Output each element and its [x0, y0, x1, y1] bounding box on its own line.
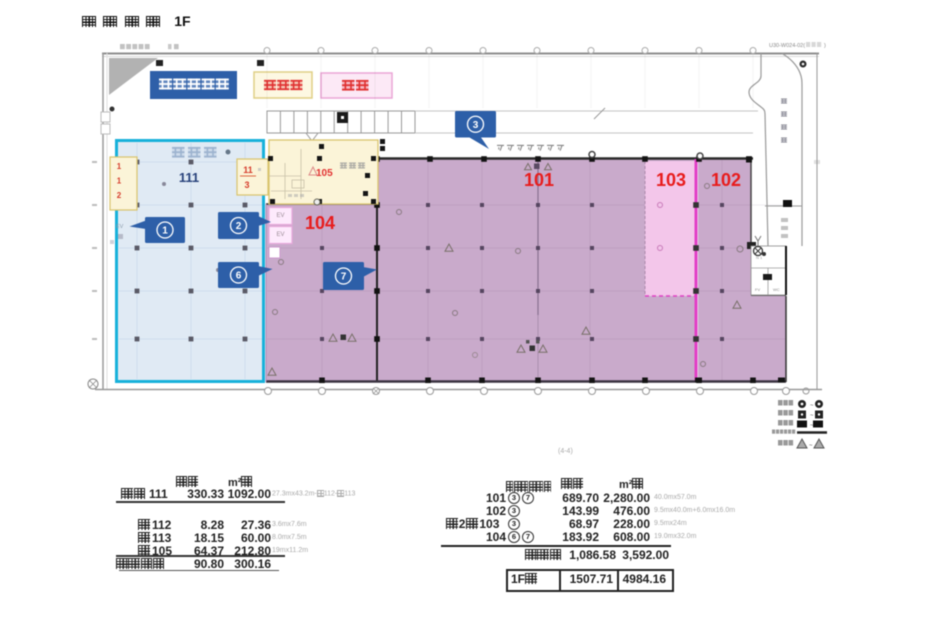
- svg-text:~: ~: [810, 403, 814, 409]
- svg-text:3: 3: [244, 180, 249, 190]
- svg-text:103: 103: [656, 170, 686, 190]
- svg-text:~: ~: [809, 443, 813, 449]
- svg-text:1: 1: [162, 226, 168, 237]
- svg-text:1: 1: [117, 177, 122, 186]
- svg-text:104: 104: [305, 213, 335, 233]
- svg-text:2: 2: [117, 191, 122, 200]
- svg-text:7: 7: [341, 272, 347, 283]
- svg-text:6: 6: [236, 271, 242, 282]
- svg-text:EV: EV: [276, 213, 284, 219]
- svg-text:102: 102: [711, 170, 741, 190]
- svg-text:WC: WC: [773, 287, 780, 292]
- svg-text:11: 11: [243, 165, 253, 175]
- svg-text:EV: EV: [116, 224, 124, 230]
- svg-text:3: 3: [473, 120, 479, 131]
- svg-text:105: 105: [316, 168, 333, 179]
- svg-text:111: 111: [179, 170, 199, 185]
- svg-text:FV: FV: [755, 287, 760, 292]
- svg-text:): ): [824, 43, 826, 49]
- svg-text:101: 101: [524, 170, 554, 190]
- svg-text:~: ~: [810, 413, 814, 419]
- svg-text:2: 2: [236, 221, 242, 232]
- svg-text:EV: EV: [276, 232, 284, 238]
- svg-text:U30-W024-02(: U30-W024-02(: [769, 43, 805, 49]
- svg-text:1: 1: [117, 162, 122, 171]
